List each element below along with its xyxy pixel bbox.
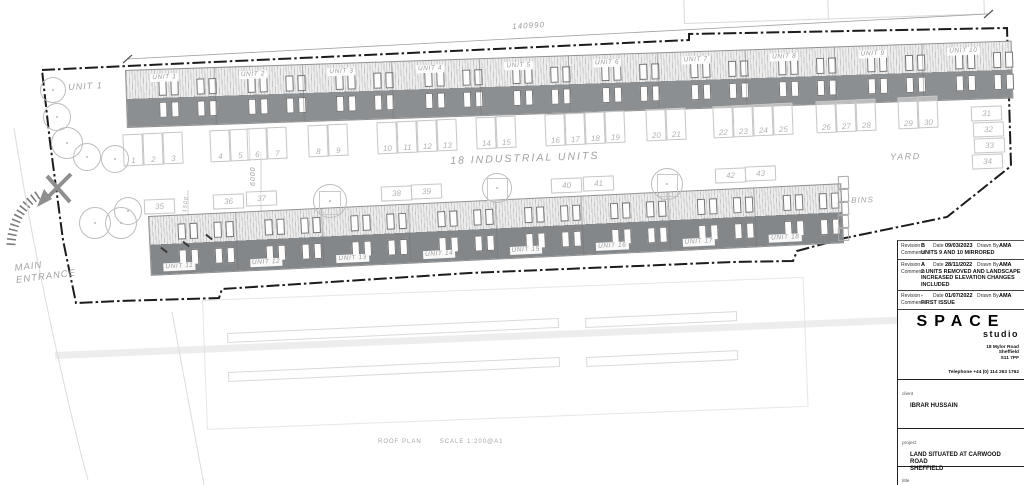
- parking-bay-32: 32: [973, 121, 1005, 137]
- parking-bay-38: 38: [381, 185, 413, 201]
- unit-label: UNIT 5: [504, 61, 532, 70]
- rooflight-pair-lower: [779, 81, 800, 98]
- roof-unit: UNIT 18: [754, 184, 843, 246]
- rooflight-pair-lower: [474, 235, 495, 252]
- rooflight-pair-lower: [513, 89, 534, 106]
- rooflight-pair-lower: [867, 78, 888, 95]
- rooflight-pair-lower: [425, 92, 446, 109]
- parking-bay-26: 26: [815, 101, 836, 134]
- rooflight-pair-lower: [561, 231, 582, 248]
- parking-bay-4: 4: [209, 130, 230, 163]
- revision-row: RevisionADate28/11/2022Drawn ByAMACommen…: [898, 260, 1024, 292]
- studio-address: 18 Mylor Road Sheffield S11 7PF: [903, 345, 1019, 362]
- parking-bay-30: 30: [917, 96, 938, 129]
- parking-bay-number: 11: [403, 143, 412, 152]
- client-label: client: [902, 392, 913, 397]
- unit-label: UNIT 2: [239, 70, 267, 79]
- rooflight-pair-lower: [956, 75, 977, 92]
- parking-bay-number: 21: [672, 130, 681, 139]
- unit-label: UNIT 7: [681, 56, 709, 65]
- parking-bay-21: 21: [665, 108, 686, 141]
- parking-bay-12: 12: [416, 120, 437, 153]
- tree: [482, 173, 512, 203]
- roof-unit: UNIT 5: [479, 56, 569, 115]
- rooflight-pair-upper: [264, 219, 285, 236]
- rooflight-pair-lower: [388, 239, 409, 256]
- roof-unit: UNIT 10: [922, 42, 1012, 101]
- rooflight-pair-upper: [819, 192, 840, 209]
- roof-unit: UNIT 15: [494, 197, 583, 259]
- tree: [101, 145, 129, 173]
- project-label: project: [902, 441, 916, 446]
- parking-bay-33: 33: [974, 137, 1006, 153]
- parking-bay-39: 39: [411, 183, 443, 199]
- parking-bay-number: 34: [983, 157, 992, 166]
- rooflight-pair-lower: [690, 84, 711, 101]
- parking-bay-number: 42: [726, 171, 735, 180]
- parking-bay-number: 30: [924, 118, 933, 127]
- roof-unit: UNIT 11: [149, 213, 237, 275]
- parking-bay-number: 23: [739, 127, 748, 136]
- title-label: title: [902, 479, 909, 484]
- parking-bay-number: 5: [238, 151, 243, 160]
- bin-store: [838, 215, 850, 229]
- parking-bay-35: 35: [144, 198, 176, 214]
- parking-bay-number: 20: [652, 131, 661, 140]
- parking-bay-number: 4: [218, 152, 223, 161]
- parking-bay-number: 25: [779, 125, 788, 134]
- unit-label: UNIT 1: [150, 73, 178, 82]
- parking-bay-2: 2: [142, 133, 163, 166]
- parking-bay-number: 38: [392, 189, 401, 198]
- rooflight-pair-upper: [733, 197, 754, 214]
- tree: [313, 184, 347, 218]
- parking-bay-number: 7: [275, 149, 280, 158]
- rooflight-pair-upper: [646, 201, 667, 218]
- studio-brand: SPACE studio 18 Mylor Road Sheffield S11…: [898, 310, 1024, 380]
- bin-store: [838, 202, 850, 216]
- parking-bay-number: 17: [571, 135, 580, 144]
- parking-bay-19: 19: [604, 111, 625, 144]
- parking-bay-14: 14: [475, 117, 496, 150]
- roof-unit: UNIT 4: [391, 59, 481, 118]
- parking-bay-3: 3: [162, 132, 183, 165]
- parking-bay-number: 35: [155, 202, 164, 211]
- rooflight-pair-upper: [386, 213, 407, 230]
- roof-unit: UNIT 16: [581, 193, 670, 255]
- tree: [651, 168, 683, 200]
- rooflight-pair-lower: [215, 247, 236, 264]
- parking-bay-number: 41: [594, 179, 603, 188]
- parking-bay-number: 26: [822, 123, 831, 132]
- parking-bay-number: 10: [383, 144, 392, 153]
- drawing-caption: ROOF PLAN SCALE 1:200@A1: [378, 439, 503, 445]
- parking-bay-number: 9: [336, 146, 341, 155]
- parking-bay-24: 24: [752, 104, 773, 137]
- roof-unit: UNIT 3: [302, 62, 392, 121]
- tree: [73, 143, 101, 171]
- roof-unit: UNIT 8: [745, 48, 835, 107]
- parking-bay-25: 25: [772, 103, 793, 136]
- rooflight-pair-lower: [301, 243, 322, 260]
- roof-plan-canvas: UNIT 1UNIT 2UNIT 3UNIT 4UNIT 5UNIT 6UNIT…: [0, 0, 1024, 485]
- bins-label: BINS: [851, 195, 874, 205]
- unit-label: UNIT 13: [336, 254, 369, 264]
- parking-bay-37: 37: [246, 190, 278, 206]
- unit-label: UNIT 11: [163, 262, 195, 271]
- tree: [40, 77, 66, 103]
- unit-label: UNIT 15: [509, 245, 542, 255]
- entrance-crossing-hatch: [11, 195, 38, 245]
- rooflight-pair-lower: [994, 74, 1015, 91]
- parking-bay-number: 3: [171, 154, 176, 163]
- unit1-area-label: UNIT 1: [68, 80, 103, 92]
- parking-bay-number: 32: [984, 125, 993, 134]
- unit-label: UNIT 17: [682, 237, 715, 247]
- parking-bay-number: 12: [423, 142, 432, 151]
- parking-bay-7: 7: [266, 127, 287, 160]
- rooflight-pair-upper: [350, 215, 371, 232]
- revision-row: Revision-Date01/07/2022Drawn ByAMACommen…: [898, 291, 1024, 310]
- unit-label: UNIT 16: [596, 241, 629, 251]
- tree: [114, 197, 142, 225]
- parking-bay-20: 20: [645, 109, 666, 142]
- rooflight-pair-upper: [559, 205, 580, 222]
- title-block: RevisionBDate09/03/2023Drawn ByAMACommen…: [897, 240, 1024, 485]
- parking-bay-15: 15: [495, 116, 516, 149]
- rooflight-pair-upper: [610, 202, 631, 219]
- parking-bay-42: 42: [715, 167, 747, 183]
- yard-label: YARD: [890, 151, 921, 162]
- roof-unit: UNIT 9: [833, 45, 923, 104]
- parking-bay-40: 40: [551, 177, 583, 193]
- rooflight-pair-lower: [248, 98, 269, 115]
- parking-bay-11: 11: [396, 121, 417, 154]
- rooflight-pair-upper: [524, 206, 545, 223]
- parking-bay-number: 43: [756, 169, 765, 178]
- parking-bay-6: 6: [246, 128, 267, 161]
- roof-unit: UNIT 2: [214, 65, 304, 124]
- parking-bay-number: 27: [842, 122, 851, 131]
- parking-bay-17: 17: [564, 113, 585, 146]
- parking-bay-16: 16: [544, 114, 565, 147]
- parking-bay-10: 10: [376, 122, 397, 155]
- parking-bay-number: 18: [591, 134, 600, 143]
- bin-store: [838, 189, 850, 203]
- rooflight-pair-lower: [336, 95, 357, 112]
- parking-bay-31: 31: [971, 105, 1003, 121]
- caption-scale: SCALE 1:200@A1: [440, 439, 504, 445]
- unit-label: UNIT 6: [593, 59, 621, 68]
- roof-unit: UNIT 6: [568, 53, 658, 112]
- unit-label: UNIT 10: [947, 47, 980, 56]
- rooflight-pair-lower: [647, 227, 668, 244]
- roof-unit: UNIT 17: [667, 188, 756, 250]
- rooflight-pair-lower: [602, 87, 623, 104]
- parking-bay-29: 29: [897, 97, 918, 130]
- parking-bay-number: 31: [982, 109, 991, 118]
- unit-label: UNIT 18: [769, 233, 802, 243]
- unit-label: UNIT 9: [859, 50, 887, 59]
- parking-bay-number: 22: [719, 128, 728, 137]
- client-name: IBRAR HUSSAIN: [910, 403, 1020, 410]
- parking-bay-number: 36: [224, 197, 233, 206]
- parking-bay-18: 18: [584, 112, 605, 145]
- parking-bay-number: 29: [904, 119, 913, 128]
- parking-bay-41: 41: [583, 175, 615, 191]
- studio-telephone: Telephone +44 (0) 114 263 1762: [903, 370, 1019, 375]
- rooflight-pair-upper: [697, 198, 718, 215]
- parking-bay-8: 8: [307, 125, 328, 158]
- revision-row: RevisionBDate09/03/2023Drawn ByAMACommen…: [898, 241, 1024, 260]
- unit-label: UNIT 8: [770, 53, 798, 62]
- parking-bay-number: 16: [551, 136, 560, 145]
- parking-bay-36: 36: [213, 193, 245, 209]
- bin-store: [838, 176, 850, 190]
- parking-bay-number: 6: [255, 150, 260, 159]
- bin-store: [838, 228, 850, 242]
- rooflight-pair-upper: [473, 209, 494, 226]
- project-section: project LAND SITUATED AT CARWOOD ROAD SH…: [898, 429, 1024, 467]
- parking-bay-number: 33: [985, 141, 994, 150]
- parking-bay-number: 14: [482, 139, 491, 148]
- parking-bay-number: 1: [131, 156, 136, 165]
- studio-name: SPACE: [903, 313, 1019, 331]
- rooflight-pair-lower: [159, 101, 180, 118]
- parking-bay-number: 13: [443, 141, 452, 150]
- rooflight-pair-upper: [993, 52, 1014, 69]
- parking-bay-13: 13: [436, 119, 457, 152]
- unit-label: UNIT 3: [327, 67, 355, 76]
- rooflight-pair-upper: [213, 221, 234, 238]
- overall-dimension-text: 140990: [512, 20, 545, 31]
- parking-bay-number: 37: [257, 194, 266, 203]
- rooflight-pair-upper: [783, 194, 804, 211]
- parking-bay-number: 39: [422, 187, 431, 196]
- unit-label: UNIT 12: [250, 258, 283, 268]
- parking-bay-number: 24: [759, 126, 768, 135]
- parking-bay-34: 34: [972, 153, 1004, 169]
- parking-bay-number: 15: [502, 138, 511, 147]
- parking-bay-number: 40: [562, 181, 571, 190]
- rooflight-pair-upper: [437, 210, 458, 227]
- road-dimension-text: 6000: [250, 166, 257, 186]
- rooflight-pair-upper: [300, 217, 321, 234]
- road-edge-line: [172, 312, 204, 485]
- roof-unit: UNIT 1: [126, 68, 215, 127]
- roof-unit: UNIT 12: [235, 209, 324, 271]
- revision-table: RevisionBDate09/03/2023Drawn ByAMACommen…: [898, 241, 1024, 310]
- unit-label: UNIT 4: [416, 64, 444, 73]
- parking-bay-number: 28: [862, 121, 871, 130]
- parking-bay-number: 8: [316, 147, 321, 156]
- parking-bay-27: 27: [835, 100, 856, 133]
- parking-bay-number: 19: [611, 133, 620, 142]
- client-section: client IBRAR HUSSAIN: [898, 380, 1024, 429]
- parking-bay-number: 2: [151, 155, 156, 164]
- rooflight-pair-lower: [734, 222, 755, 239]
- parking-bay-9: 9: [327, 124, 348, 157]
- roof-unit: UNIT 14: [408, 201, 497, 263]
- parking-bay-23: 23: [732, 105, 753, 138]
- unit-label: UNIT 14: [423, 250, 456, 260]
- parking-bay-28: 28: [855, 99, 876, 132]
- parking-bay-43: 43: [745, 165, 777, 181]
- rooflight-pair-upper: [177, 223, 198, 240]
- caption-name: ROOF PLAN: [378, 439, 422, 445]
- roof-unit: UNIT 7: [656, 50, 746, 109]
- parking-bay-22: 22: [712, 106, 733, 139]
